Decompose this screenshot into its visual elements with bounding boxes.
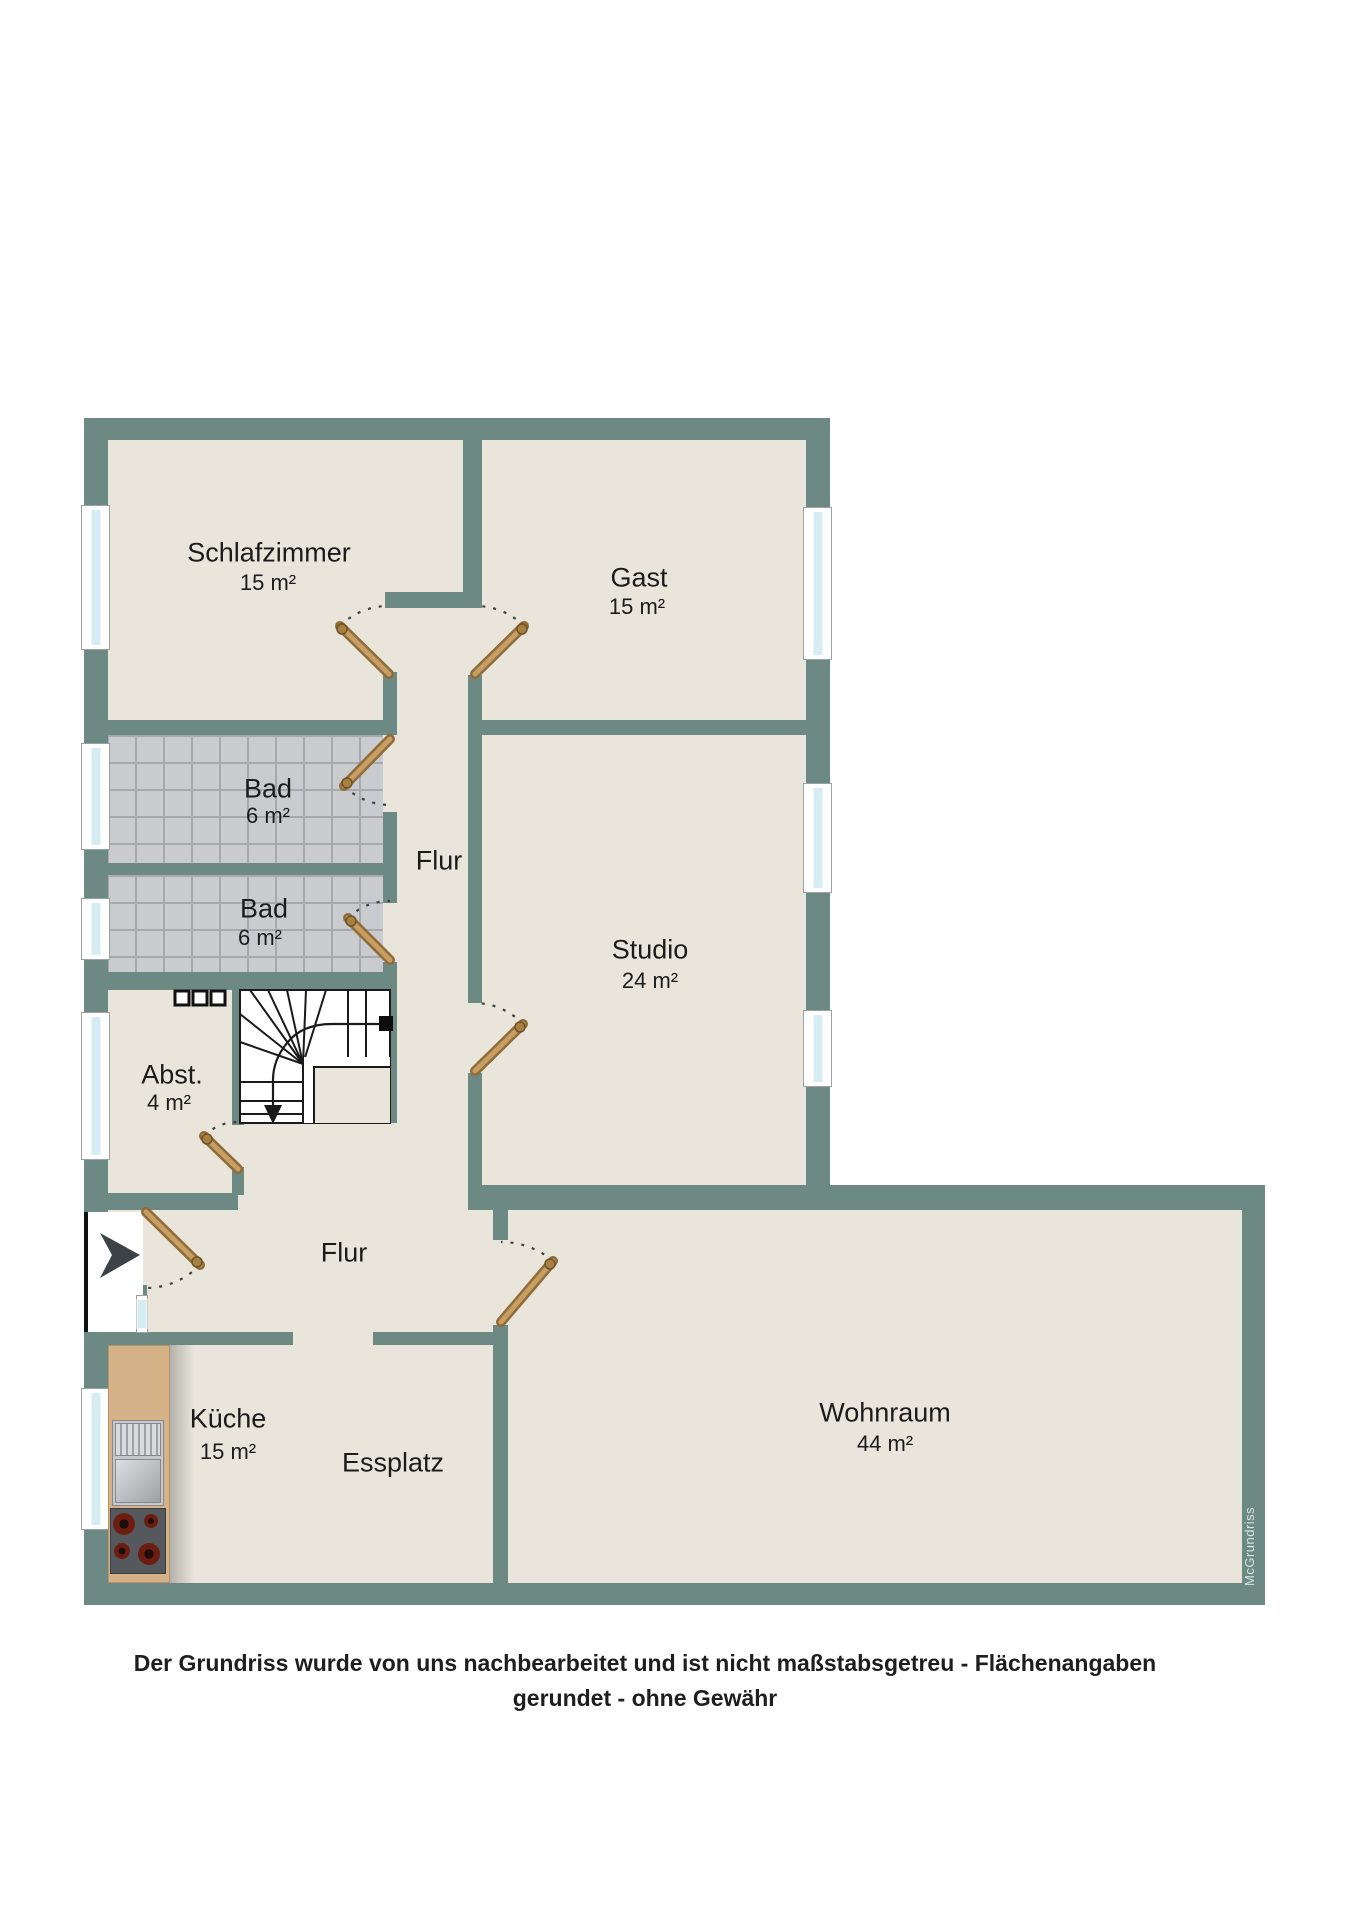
room-label-flur-lower: Flur <box>321 1238 368 1269</box>
window-pane <box>90 902 101 956</box>
room-label-studio: Studio <box>612 935 689 966</box>
caption-line-1: Der Grundriss wurde von uns nachbearbeit… <box>134 1650 1156 1676</box>
wall <box>84 418 830 440</box>
wall <box>84 1583 1265 1605</box>
wall <box>84 1332 293 1345</box>
window-pane <box>137 1299 148 1329</box>
window-pane <box>90 509 101 646</box>
wall <box>493 1207 508 1240</box>
wall <box>383 812 397 863</box>
area-label-abstellraum: 4 m² <box>147 1090 191 1116</box>
area-label-studio: 24 m² <box>622 968 678 994</box>
window <box>81 898 110 960</box>
wall <box>84 418 108 505</box>
window <box>81 743 110 850</box>
watermark: McGrundriss <box>1242 1494 1257 1586</box>
kitchen-sink-basin <box>115 1459 161 1503</box>
wall <box>463 440 482 592</box>
entry-side-window <box>136 1295 148 1333</box>
window <box>803 1010 832 1087</box>
wall <box>468 1073 482 1185</box>
room-label-kueche: Küche <box>190 1404 267 1435</box>
kitchen-counter-shadow <box>170 1345 194 1583</box>
stove-burner <box>114 1543 130 1559</box>
window-pane <box>90 1016 101 1156</box>
wall <box>84 972 397 990</box>
room-label-bad-1: Bad <box>244 774 292 805</box>
window <box>81 1388 110 1530</box>
area-label-wohnraum: 44 m² <box>857 1431 913 1457</box>
wall <box>84 1193 238 1210</box>
stove-burner <box>138 1543 160 1565</box>
wall <box>468 720 830 735</box>
wall <box>232 990 244 1125</box>
window-pane <box>90 747 101 846</box>
entry-threshold-line <box>84 1212 88 1332</box>
wall <box>84 720 397 735</box>
room-label-abstellraum: Abst. <box>141 1060 203 1091</box>
area-label-bad-2: 6 m² <box>238 925 282 951</box>
wall <box>373 1332 493 1345</box>
page: Schlafzimmer 15 m² Gast 15 m² Bad 6 m² B… <box>0 0 1357 1920</box>
room-label-schlafzimmer: Schlafzimmer <box>187 538 351 569</box>
wall <box>468 1185 1265 1210</box>
window <box>81 505 110 650</box>
kitchen-sink-drainer <box>115 1423 161 1456</box>
room-label-flur-upper: Flur <box>416 846 463 877</box>
wall <box>806 1087 830 1185</box>
room-label-wohnraum: Wohnraum <box>819 1398 951 1429</box>
room-label-bad-2: Bad <box>240 894 288 925</box>
wall <box>383 990 397 1123</box>
floor-area-living-wing <box>805 1185 1265 1605</box>
window <box>803 507 832 660</box>
wall <box>383 875 397 903</box>
room-label-essplatz: Essplatz <box>342 1448 444 1479</box>
area-label-bad-1: 6 m² <box>246 803 290 829</box>
window <box>803 783 832 893</box>
caption: Der Grundriss wurde von uns nachbearbeit… <box>0 1646 1290 1716</box>
window <box>81 1012 110 1160</box>
caption-line-2: gerundet - ohne Gewähr <box>513 1685 778 1711</box>
wall <box>232 1167 244 1195</box>
area-label-schlafzimmer: 15 m² <box>240 570 296 596</box>
wall <box>385 592 482 608</box>
wall <box>806 440 830 507</box>
stove-burner <box>144 1514 158 1528</box>
stove-burner <box>113 1513 135 1535</box>
area-label-kueche: 15 m² <box>200 1439 256 1465</box>
area-label-gast: 15 m² <box>609 594 665 620</box>
wall <box>493 1325 508 1583</box>
window-pane <box>812 1014 823 1083</box>
window-pane <box>90 1392 101 1526</box>
room-label-gast: Gast <box>610 563 667 594</box>
entry-opening <box>84 1212 143 1332</box>
wall <box>806 893 830 1010</box>
window-pane <box>812 787 823 889</box>
wall <box>84 863 397 875</box>
window-pane <box>812 511 823 656</box>
